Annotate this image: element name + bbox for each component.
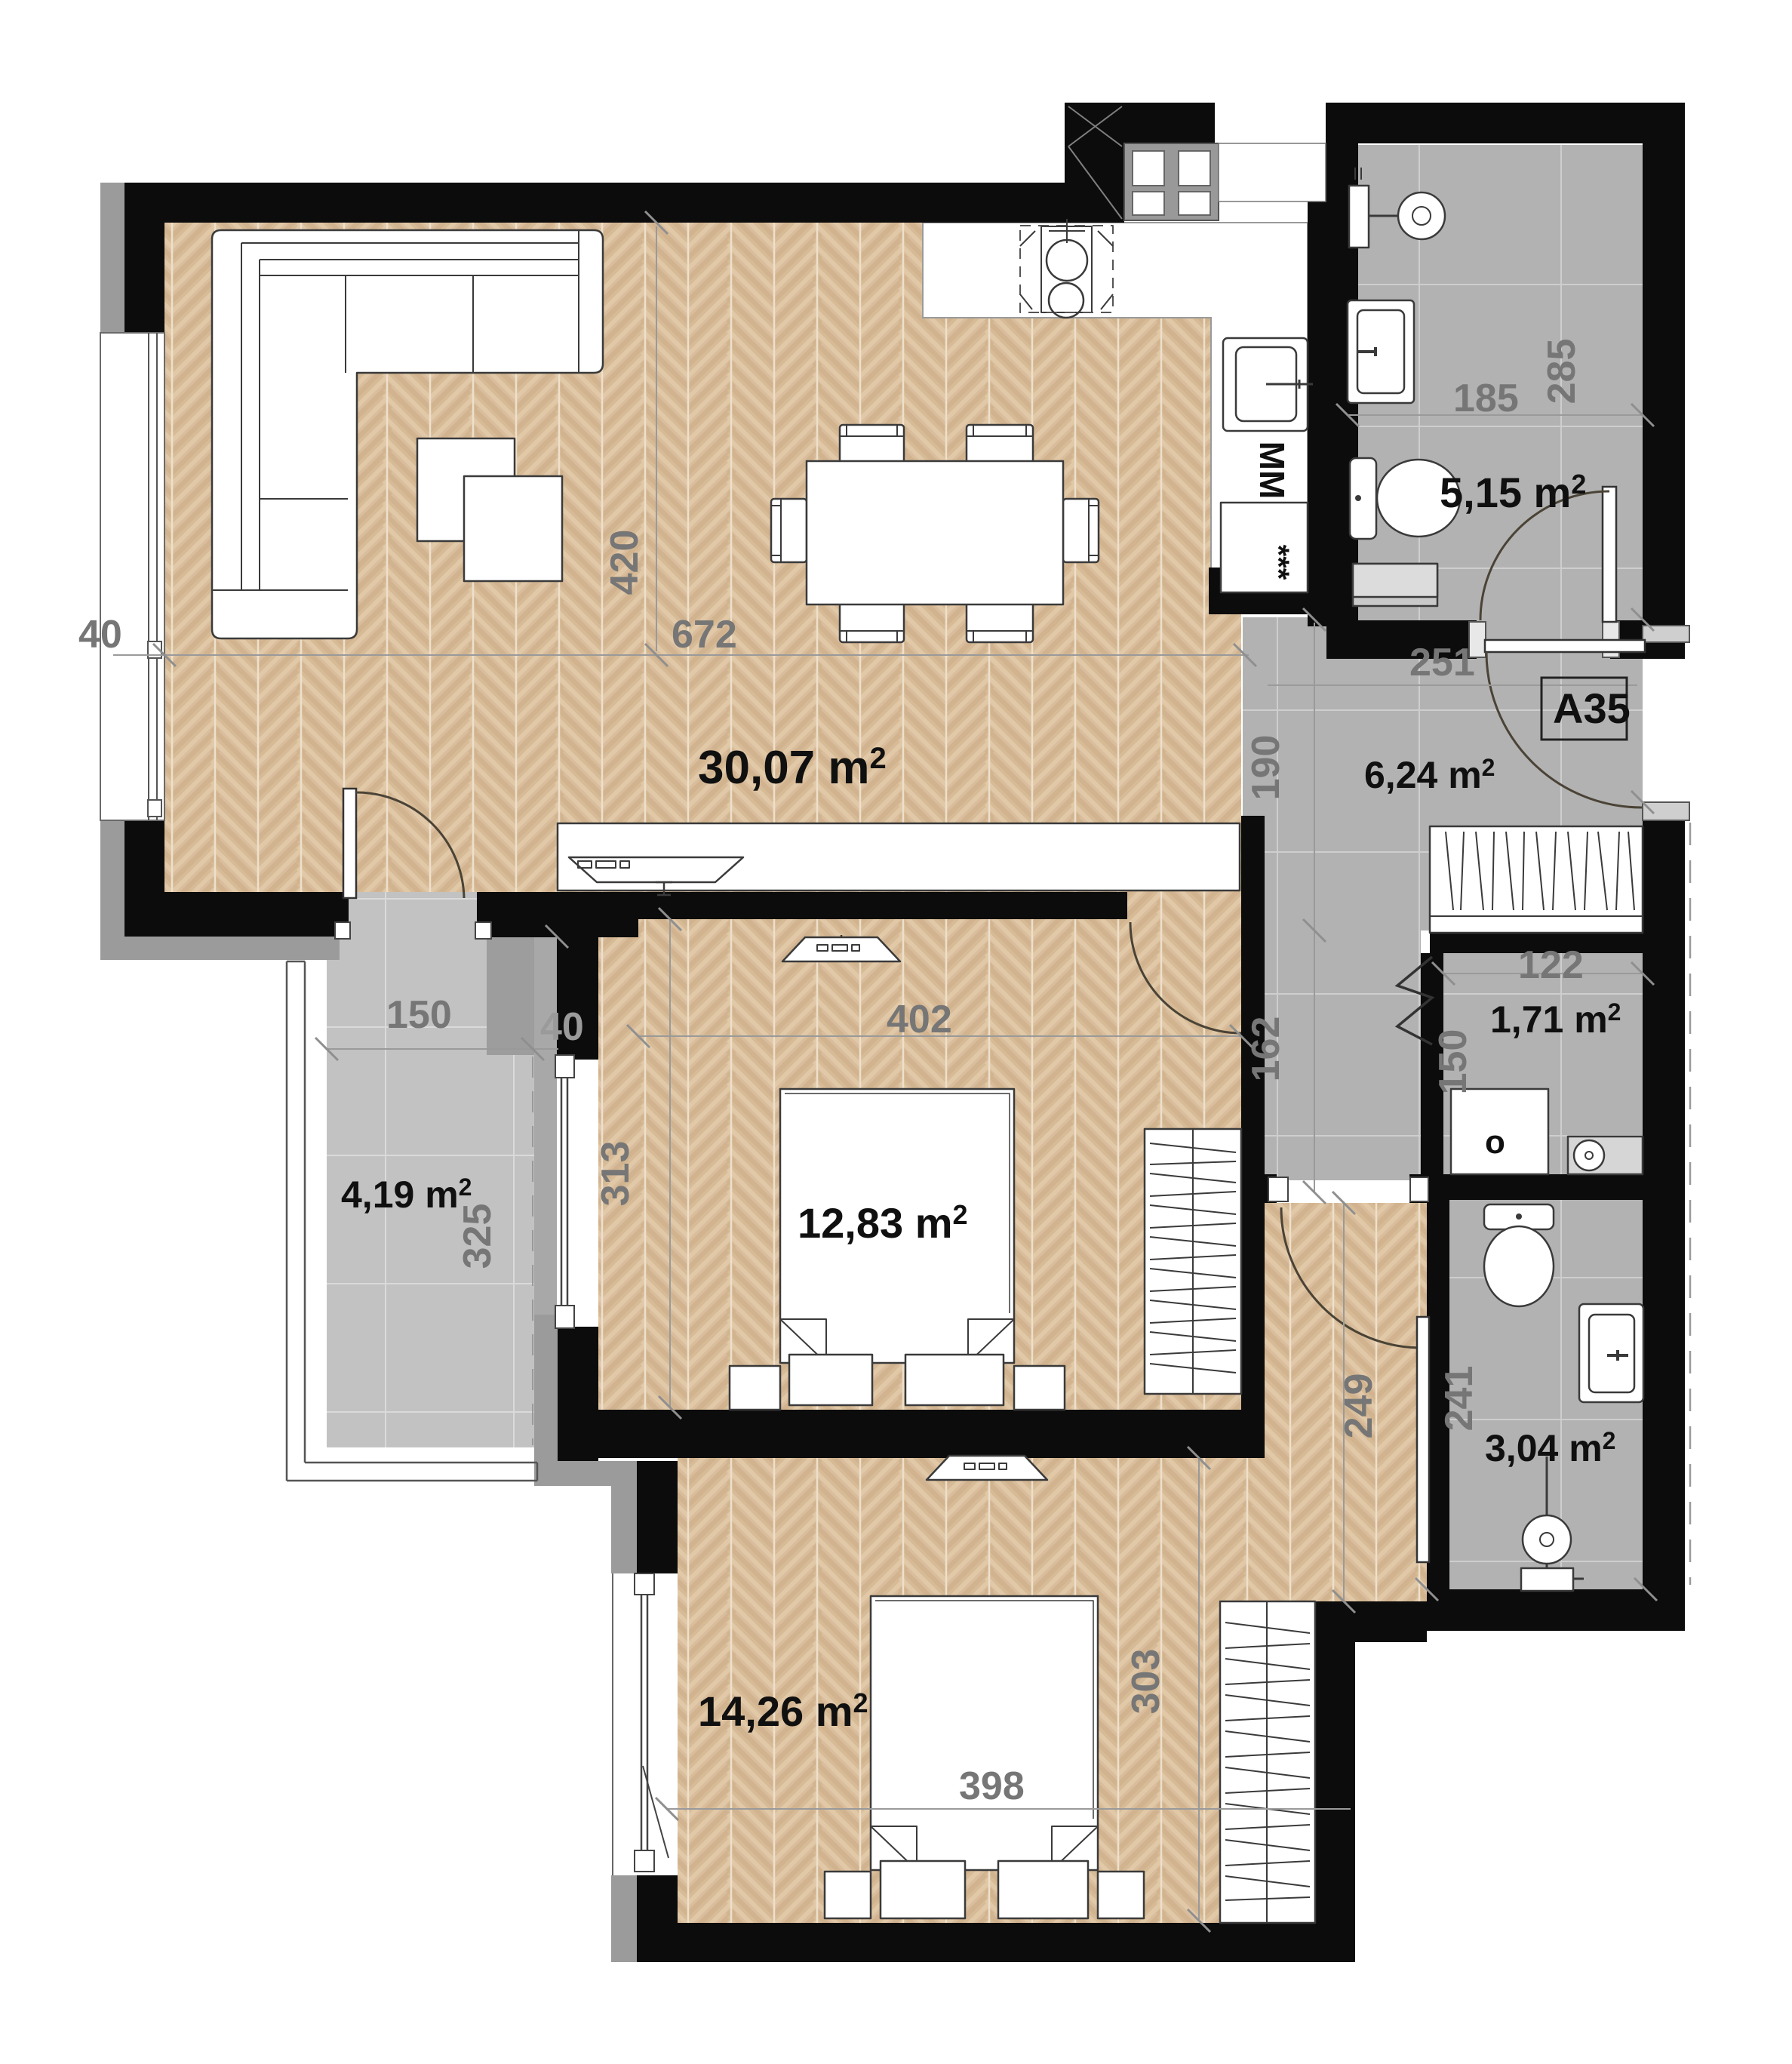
svg-text:3,04 m2: 3,04 m2 [1485,1427,1615,1469]
svg-text:313: 313 [594,1141,638,1207]
svg-text:398: 398 [959,1764,1025,1808]
svg-text:12,83 m2: 12,83 m2 [798,1199,968,1247]
svg-text:285: 285 [1540,339,1584,404]
svg-text:325: 325 [456,1204,499,1269]
svg-text:185: 185 [1453,377,1519,420]
svg-text:190: 190 [1244,735,1288,801]
svg-text:162: 162 [1244,1017,1288,1082]
svg-text:5,15 m2: 5,15 m2 [1440,469,1586,516]
svg-text:30,07 m2: 30,07 m2 [698,742,887,794]
svg-text:o: o [1485,1124,1505,1161]
svg-text:303: 303 [1124,1649,1168,1715]
svg-text:150: 150 [1431,1029,1475,1095]
svg-text:40: 40 [78,613,122,657]
svg-text:241: 241 [1437,1366,1481,1432]
svg-text:40: 40 [540,1005,584,1049]
svg-text:A35: A35 [1553,684,1631,732]
svg-text:4,19 m2: 4,19 m2 [341,1173,472,1216]
svg-text:122: 122 [1518,943,1584,987]
svg-text:402: 402 [887,998,952,1041]
svg-text:420: 420 [603,530,647,595]
svg-text:***: *** [1262,545,1295,580]
svg-text:1,71 m2: 1,71 m2 [1490,998,1621,1041]
svg-text:672: 672 [672,613,737,657]
svg-text:MM: MM [1253,441,1292,500]
svg-text:150: 150 [386,993,452,1037]
svg-text:14,26 m2: 14,26 m2 [698,1687,868,1735]
svg-text:251: 251 [1409,641,1475,684]
svg-text:249: 249 [1337,1373,1381,1439]
svg-text:6,24 m2: 6,24 m2 [1364,754,1495,796]
